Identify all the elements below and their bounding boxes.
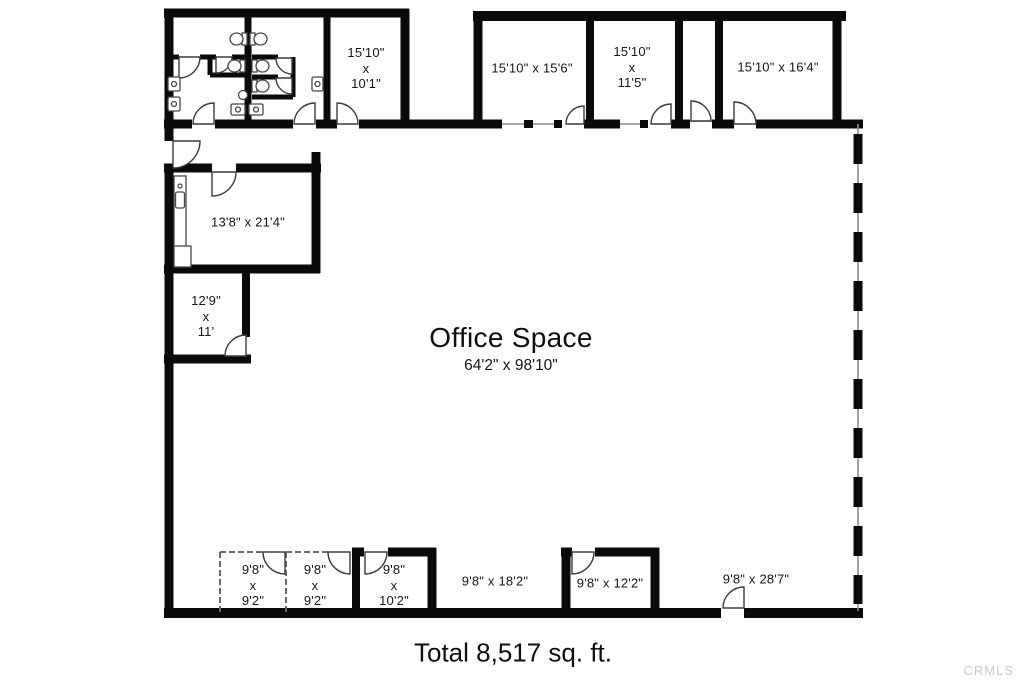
door-room-11-5	[651, 104, 671, 124]
door-bottom-room-2	[328, 552, 350, 574]
sink-icon	[168, 77, 180, 91]
door-bottom-room-4	[572, 552, 594, 574]
door-room-15-6	[566, 106, 584, 124]
area-label-28-7: 9'8" x 28'7"	[723, 571, 789, 587]
door-room-12-9	[225, 335, 246, 356]
office-space-dimensions: 64'2" x 98'10"	[464, 357, 558, 375]
room-label-13-8: 13'8" x 21'4"	[211, 214, 285, 230]
room-label-12-2: 9'8" x 12'2"	[577, 575, 643, 591]
kitchenette-counter	[174, 176, 191, 267]
floorplan: 15'10" x 10'1" 15'10" x 15'6" 15'10" x 1…	[0, 0, 1024, 681]
toilet-icon	[250, 33, 267, 45]
door-restroom-right	[294, 103, 315, 124]
door-stall-right-2	[276, 78, 292, 94]
room-label-9-2-a: 9'8" x 9'2"	[242, 562, 264, 609]
sink-icon	[249, 104, 263, 115]
toilet-icon	[252, 80, 269, 92]
door-bottom-room-1	[263, 552, 285, 574]
room-label-9-2-b: 9'8" x 9'2"	[304, 562, 326, 609]
room-label-11-5: 15'10" x 11'5"	[613, 44, 650, 91]
door-bottom-exit	[723, 587, 744, 608]
room-label-15-6: 15'10" x 15'6"	[491, 60, 572, 76]
floor-drain-icon	[239, 91, 248, 100]
toilet-icon	[228, 60, 245, 72]
door-stall-right-1	[276, 58, 292, 74]
crmls-watermark: CRMLS	[963, 663, 1014, 678]
toilet-icon	[230, 33, 247, 45]
sink-icon	[231, 104, 245, 115]
sink-icon	[168, 97, 180, 111]
total-square-footage: Total 8,517 sq. ft.	[414, 638, 612, 669]
office-space-title: Office Space	[429, 322, 592, 354]
sink-icon	[312, 77, 323, 91]
room-label-10-1: 15'10" x 10'1"	[347, 45, 384, 92]
room-label-12-9: 12'9" x 11'	[191, 293, 221, 340]
toilet-icon	[252, 60, 269, 72]
exterior-walls	[164, 9, 863, 616]
door-corridor	[691, 101, 711, 121]
door-restroom-inner	[179, 57, 200, 78]
room-label-16-4: 15'10" x 16'4"	[737, 59, 818, 75]
room-label-10-2: 9'8" x 10'2"	[379, 562, 409, 609]
door-restroom-left	[193, 103, 214, 124]
door-room-16-4	[734, 102, 756, 124]
door-room-10-1	[337, 103, 358, 124]
door-room-13-8	[212, 172, 236, 196]
area-label-18-2: 9'8" x 18'2"	[462, 573, 528, 589]
